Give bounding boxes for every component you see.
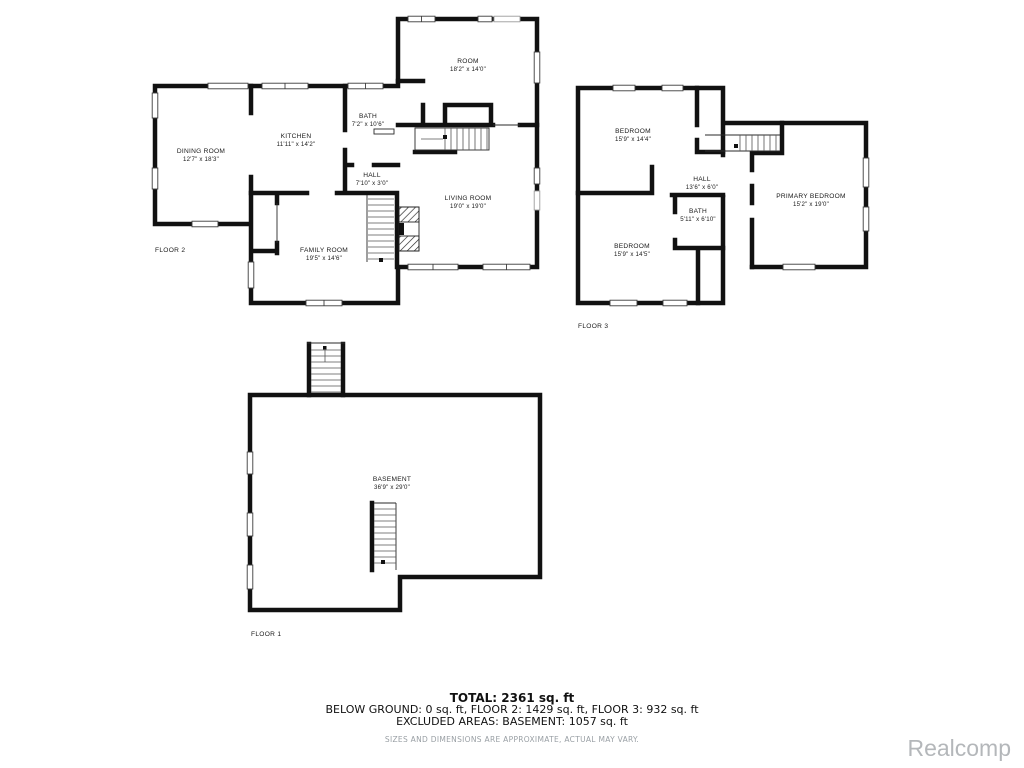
summary-floor-areas: BELOW GROUND: 0 sq. ft, FLOOR 2: 1429 sq…	[0, 704, 1024, 716]
room-name-label: BEDROOM	[615, 128, 651, 135]
floor1-interior-stairs	[372, 503, 396, 570]
floor2-plan: ROOM 18'2" x 14'0" BATH 7'2" x 10'6" KIT…	[152, 16, 540, 306]
room-dims-label: 19'0" x 19'0"	[450, 203, 486, 210]
floor1-windows	[247, 452, 253, 589]
room-dims-label: 11'11" x 14'2"	[277, 141, 316, 148]
room-dims-label: 15'9" x 14'5"	[614, 251, 650, 258]
floor3-label: FLOOR 3	[578, 323, 608, 330]
room-name-label: HALL	[693, 176, 711, 183]
floor1-plan: BASEMENT 36'9" x 29'0" FLOOR 1	[247, 343, 540, 638]
summary-block: TOTAL: 2361 sq. ft BELOW GROUND: 0 sq. f…	[0, 692, 1024, 744]
room-dims-label: 18'2" x 14'0"	[450, 66, 486, 73]
room-name-label: HALL	[363, 172, 381, 179]
room-name-label: BASEMENT	[373, 476, 411, 483]
room-dims-label: 36'9" x 29'0"	[374, 484, 410, 491]
floor3-interior-walls	[578, 88, 782, 303]
room-name-label: BATH	[359, 113, 377, 120]
room-dims-label: 7'10" x 3'0"	[356, 180, 388, 187]
floor2-lower-stairs	[367, 195, 394, 262]
room-name-label: BEDROOM	[614, 243, 650, 250]
realcomp-watermark: Realcomp	[907, 735, 1011, 762]
room-name-label: BATH	[689, 208, 707, 215]
floor2-upper-stairs	[415, 128, 489, 150]
floor2-label: FLOOR 2	[155, 247, 185, 254]
room-name-label: PRIMARY BEDROOM	[776, 193, 845, 200]
room-name-label: KITCHEN	[281, 133, 312, 140]
room-name-label: DINING ROOM	[177, 148, 225, 155]
room-dims-label: 15'2" x 19'0"	[793, 201, 829, 208]
floor3-plan: BEDROOM 15'9" x 14'4" HALL 13'6" x 6'0" …	[578, 85, 869, 330]
room-dims-label: 19'5" x 14'6"	[306, 255, 342, 262]
summary-disclaimer: SIZES AND DIMENSIONS ARE APPROXIMATE, AC…	[0, 735, 1024, 744]
room-name-label: LIVING ROOM	[445, 195, 492, 202]
floor1-label: FLOOR 1	[251, 631, 281, 638]
room-name-label: FAMILY ROOM	[300, 247, 348, 254]
floor1-entry-stairs	[307, 343, 345, 392]
summary-excluded-areas: EXCLUDED AREAS: BASEMENT: 1057 sq. ft	[0, 716, 1024, 728]
floor1-perimeter-walls	[250, 395, 540, 610]
floor2-interior-walls	[251, 81, 537, 267]
floorplan-svg: ROOM 18'2" x 14'0" BATH 7'2" x 10'6" KIT…	[0, 0, 1024, 768]
floor3-stairs	[705, 135, 780, 151]
room-dims-label: 5'11" x 6'10"	[680, 216, 716, 223]
room-dims-label: 13'6" x 6'0"	[686, 184, 718, 191]
bath-door-detail	[374, 129, 394, 134]
floor1-stairwell-walls	[309, 344, 343, 395]
room-name-label: ROOM	[457, 58, 479, 65]
fireplace	[399, 207, 419, 251]
room-dims-label: 12'7" x 18'3"	[183, 156, 219, 163]
room-dims-label: 7'2" x 10'6"	[352, 121, 384, 128]
room-dims-label: 15'9" x 14'4"	[615, 136, 651, 143]
floorplan-page: ROOM 18'2" x 14'0" BATH 7'2" x 10'6" KIT…	[0, 0, 1024, 768]
